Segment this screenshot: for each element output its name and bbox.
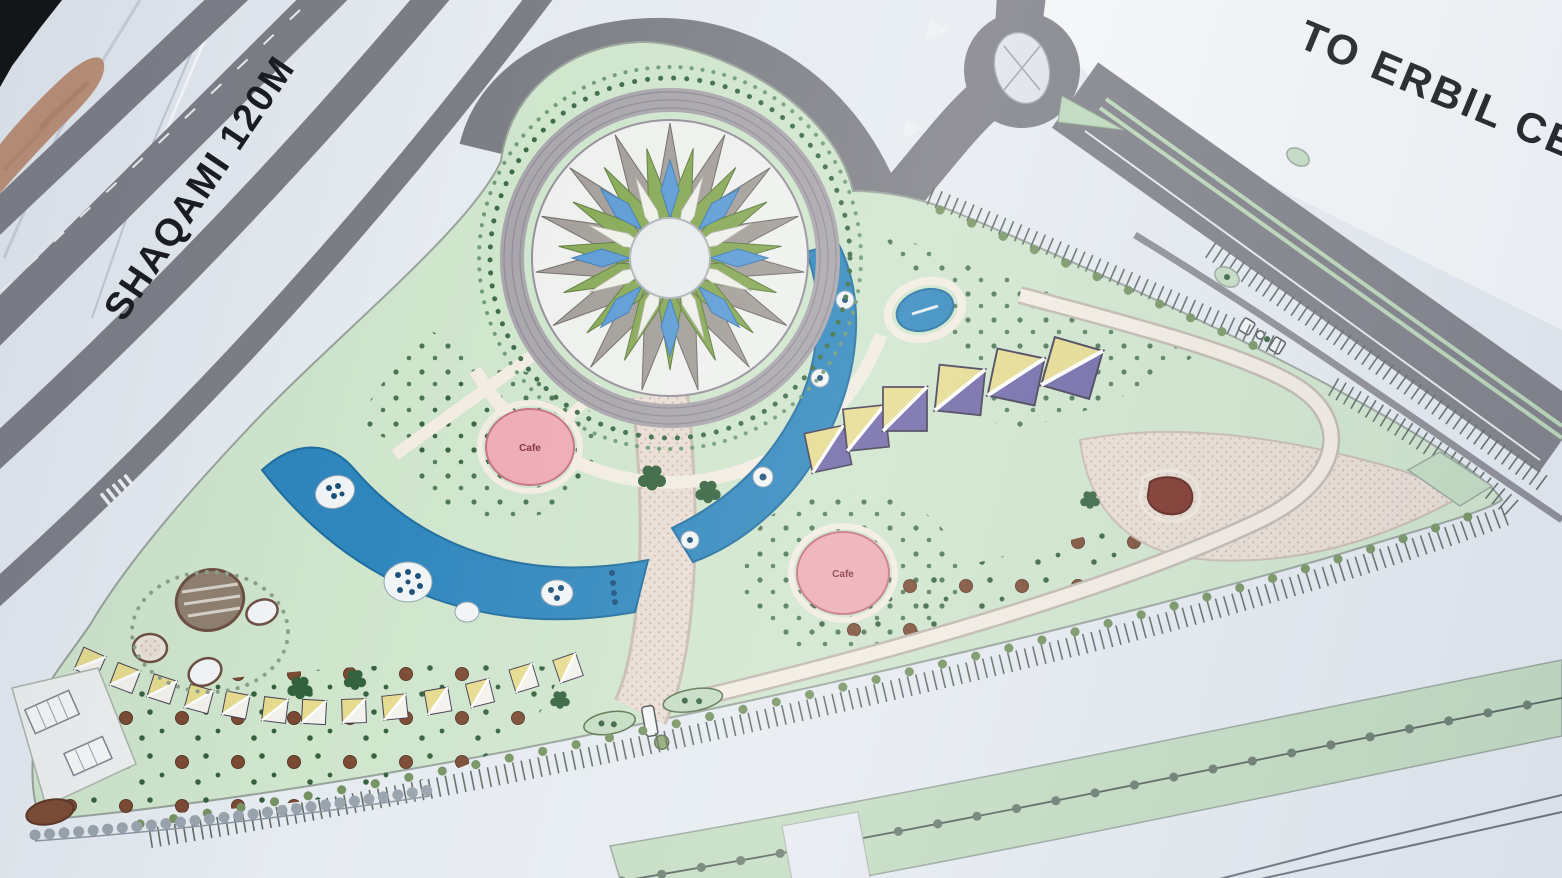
plan-photo: Cafe Cafe [0,0,1562,878]
cafe-a: Cafe [480,403,580,491]
central-promenade [640,395,668,712]
plaza-oval-texture [140,638,160,658]
red-grove-east [1148,477,1193,514]
cafe-b: Cafe [791,526,895,620]
cafe-b-label: Cafe [832,569,854,580]
cafe-a-label: Cafe [519,443,541,454]
fountain-island-4 [541,580,573,606]
verge-island-tree [1224,274,1230,280]
fountain-island-3 [455,602,479,622]
master-plan-drawing: Cafe Cafe [0,0,1562,878]
mandala-center [630,218,710,298]
